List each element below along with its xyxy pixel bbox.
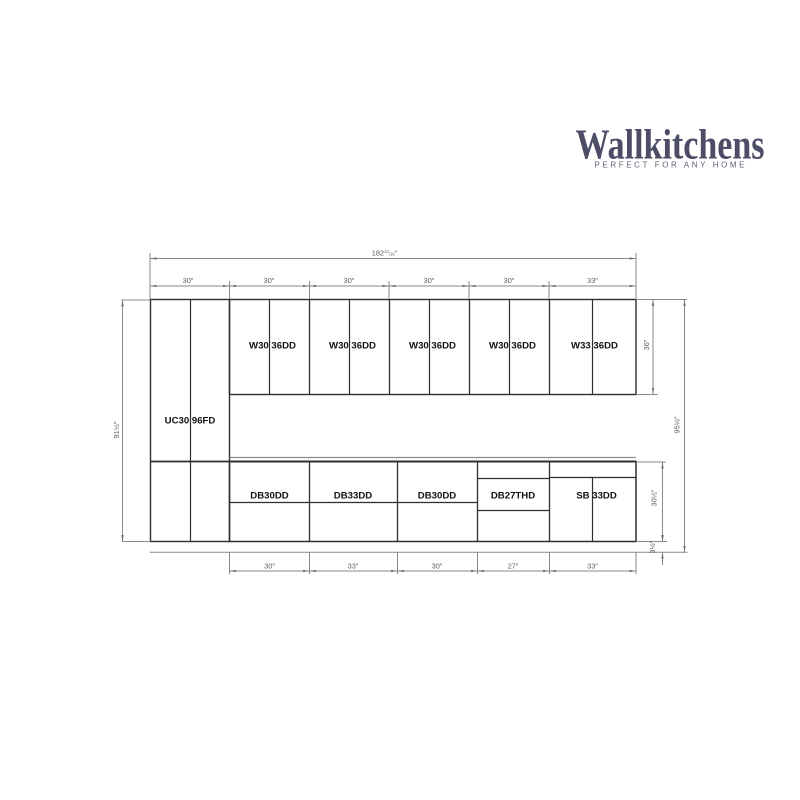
svg-text:DB27THD: DB27THD [491, 491, 535, 502]
svg-text:W30 36DD: W30 36DD [409, 341, 456, 352]
svg-text:30½″: 30½″ [650, 489, 659, 506]
svg-text:30″: 30″ [432, 562, 443, 571]
svg-text:18213/16″: 18213/16″ [372, 249, 398, 258]
svg-text:30″: 30″ [264, 562, 275, 571]
svg-text:SB 33DD: SB 33DD [576, 491, 617, 502]
svg-text:W33 36DD: W33 36DD [571, 341, 618, 352]
svg-text:W30 36DD: W30 36DD [329, 341, 376, 352]
svg-text:30″: 30″ [264, 276, 275, 285]
svg-text:DB30DD: DB30DD [418, 491, 456, 502]
svg-text:30″: 30″ [344, 276, 355, 285]
svg-text:30″: 30″ [424, 276, 435, 285]
svg-text:36″: 36″ [642, 339, 651, 350]
svg-text:95⅛″: 95⅛″ [673, 416, 682, 433]
svg-text:91½″: 91½″ [112, 421, 121, 438]
svg-text:33″: 33″ [587, 276, 598, 285]
svg-text:3½″: 3½″ [648, 540, 657, 553]
svg-text:DB33DD: DB33DD [334, 491, 372, 502]
svg-text:33″: 33″ [587, 562, 598, 571]
svg-text:W30 36DD: W30 36DD [249, 341, 296, 352]
svg-text:DB30DD: DB30DD [250, 491, 288, 502]
svg-text:27″: 27″ [508, 562, 519, 571]
svg-text:UC30 96FD: UC30 96FD [165, 416, 216, 427]
svg-text:30″: 30″ [504, 276, 515, 285]
svg-text:33″: 33″ [348, 562, 359, 571]
svg-text:30″: 30″ [183, 276, 194, 285]
svg-text:W30 36DD: W30 36DD [489, 341, 536, 352]
